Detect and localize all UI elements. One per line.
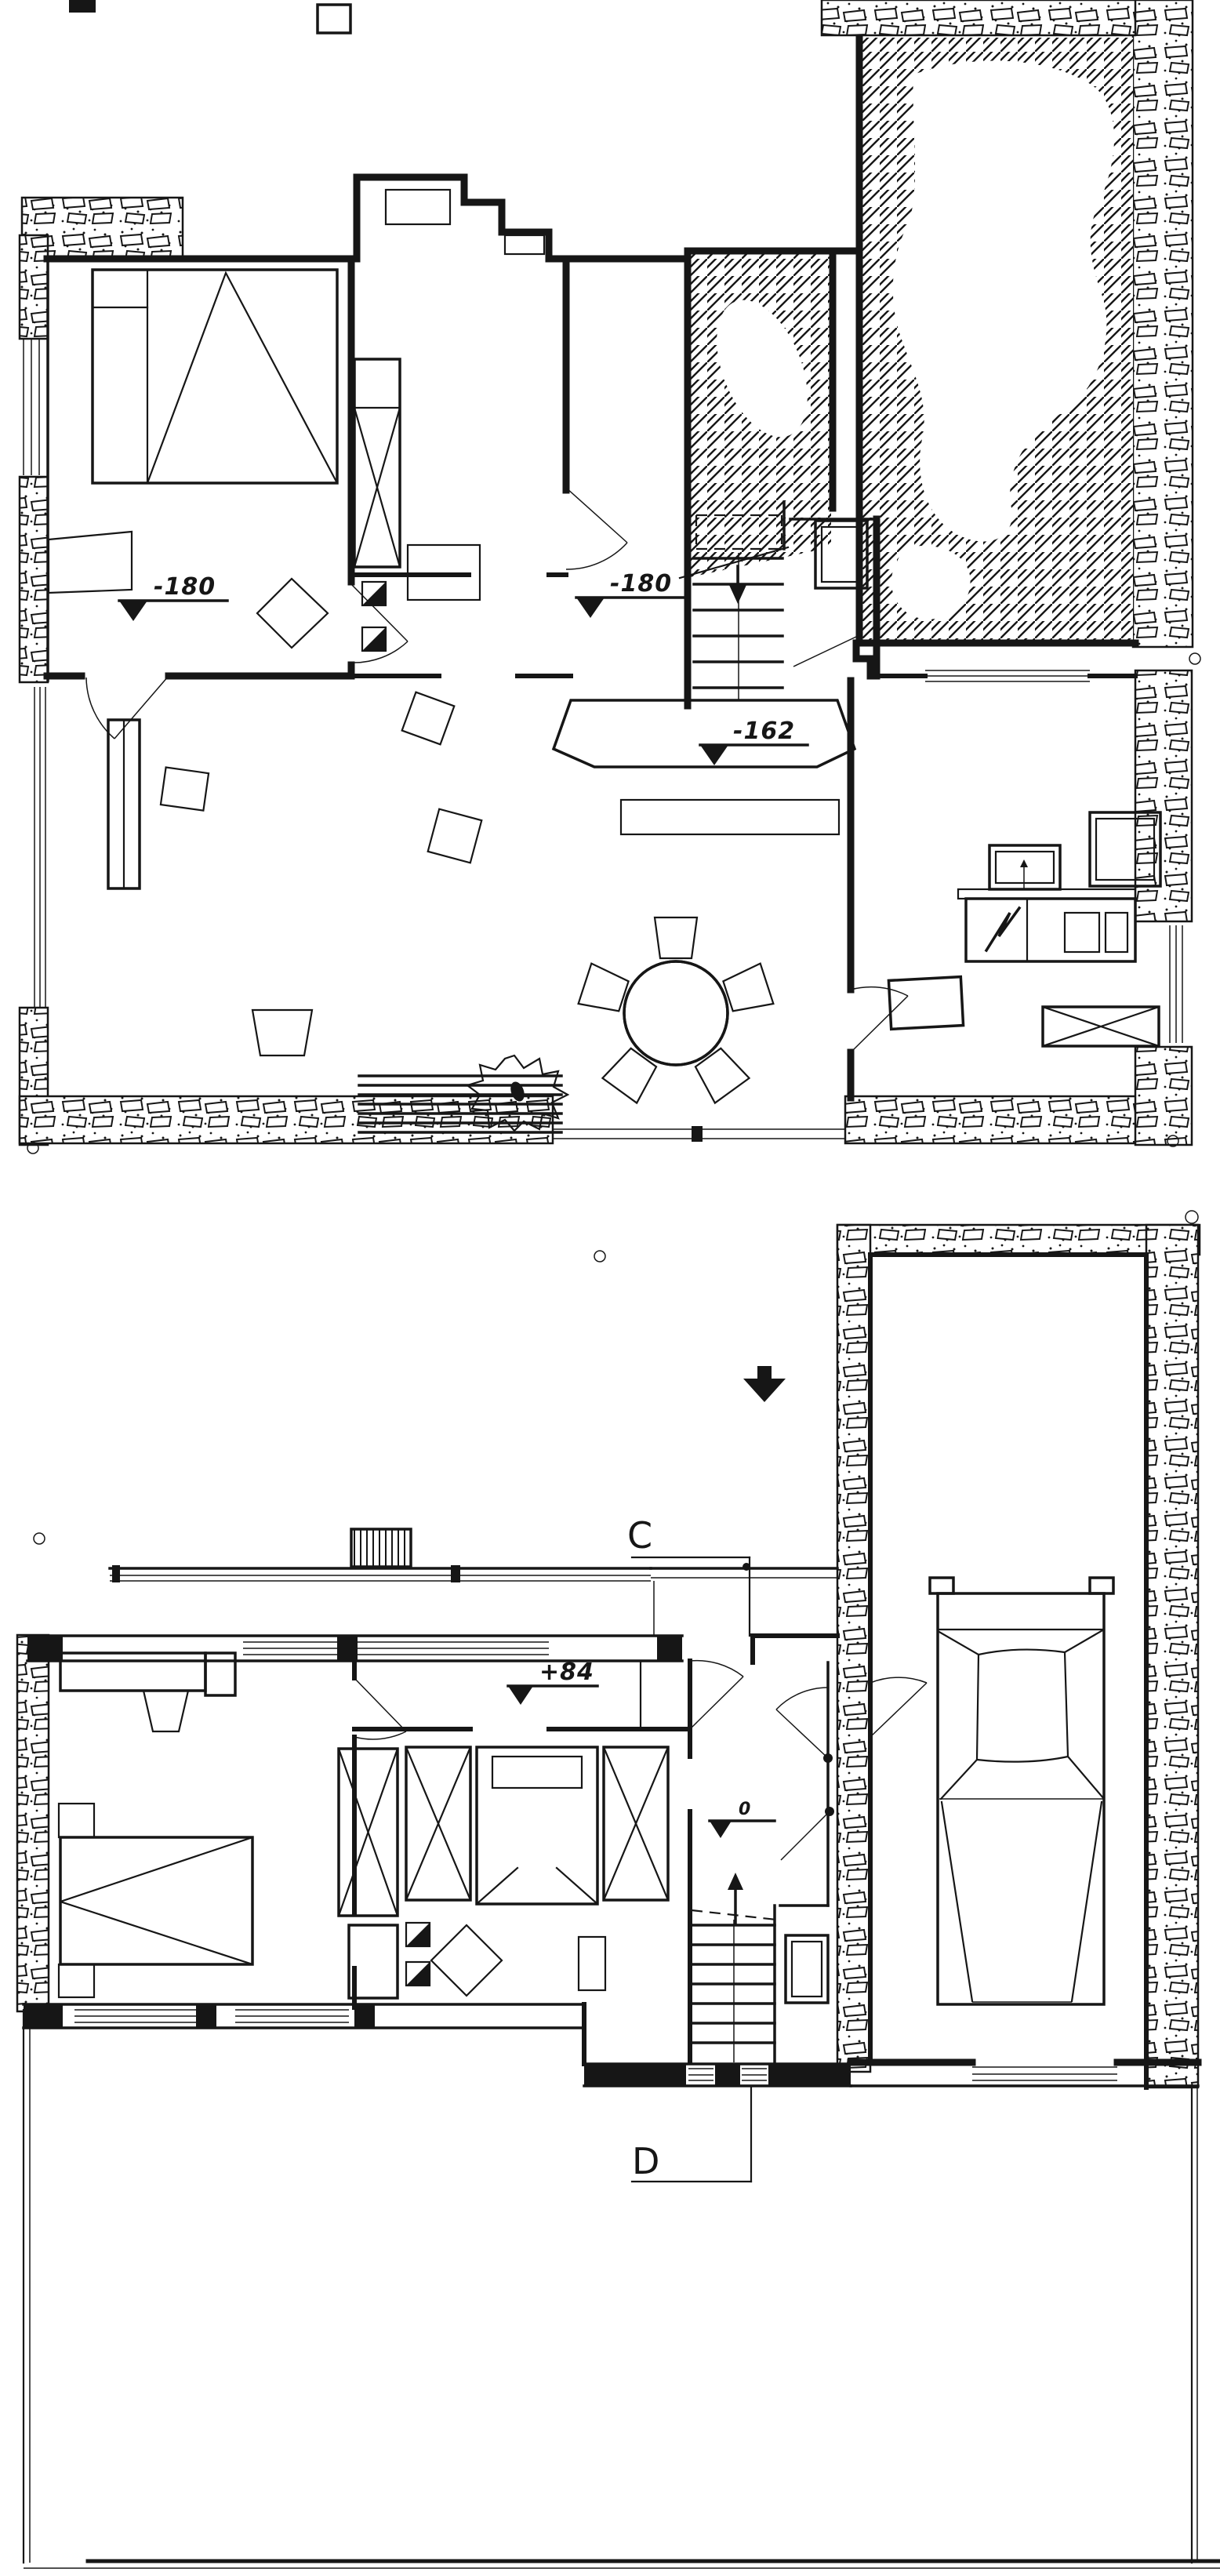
survey-circle <box>594 1251 605 1262</box>
bed <box>60 1837 252 1964</box>
car-mirror-left <box>930 1578 953 1593</box>
stair-arrow-head <box>729 585 746 604</box>
garden-steps <box>359 1076 561 1132</box>
wardrobe-x <box>406 1747 470 1900</box>
middle-bedroom-furniture <box>406 1747 668 1996</box>
floor-cushion <box>257 579 328 648</box>
level-label: -180 <box>610 570 672 598</box>
north-arrow <box>743 1366 786 1402</box>
living-room-furniture <box>108 692 845 1142</box>
panel-symbols <box>406 1923 430 1986</box>
level-label: -162 <box>733 718 795 745</box>
floor-plan-drawing: -180 -180 -162 <box>0 0 1220 2576</box>
kitchen-table <box>989 845 1060 889</box>
wardrobe-x <box>339 1749 398 1916</box>
side-table <box>49 532 132 593</box>
section-label-c: C <box>627 1514 652 1557</box>
floor-cushion <box>431 1925 502 1996</box>
wardrobe-x <box>604 1747 668 1900</box>
dining-table <box>579 917 774 1103</box>
hatched-stair-void <box>688 251 859 577</box>
site-boundary <box>24 2010 1220 2568</box>
terrace-blob-small <box>891 546 971 619</box>
stairs-up <box>692 1873 776 2062</box>
level-label: +84 <box>539 1659 594 1686</box>
facade-wall <box>27 1636 837 1662</box>
split-level-platform <box>554 700 855 834</box>
corner-post-circle <box>1189 653 1200 664</box>
bench <box>252 1010 312 1055</box>
sink-basin-2 <box>1106 913 1127 952</box>
level-marker-landing: 0 <box>710 1800 775 1838</box>
nightstand <box>59 1964 94 1997</box>
door-swings <box>86 488 908 1052</box>
side-table <box>579 1937 605 1990</box>
masonry-wall-west <box>17 1635 49 2011</box>
section-label-d: D <box>632 2140 659 2182</box>
level-marker-bedroom: -180 <box>119 573 227 621</box>
nightstand <box>59 1804 94 1837</box>
chimney <box>351 1529 411 1567</box>
roof-terrace-railing <box>110 1565 837 1636</box>
car-mirror-right <box>1090 1578 1113 1593</box>
level-marker-living: -162 <box>700 718 808 765</box>
electric-stove-symbol <box>986 908 1019 950</box>
level-label: 0 <box>739 1800 750 1819</box>
plan-sheet: -180 -180 -162 <box>0 0 1220 2576</box>
lower-plan: +84 0 C D <box>17 1211 1220 2568</box>
wardrobe-x <box>354 359 400 567</box>
edge-mark <box>69 0 96 13</box>
kitchen <box>888 812 1160 1046</box>
left-bedroom-furniture <box>59 1653 398 1998</box>
small-table <box>888 977 963 1030</box>
stair-arrow-head <box>728 1873 743 1890</box>
survey-circle <box>1186 1211 1198 1223</box>
veranda-doors <box>553 1126 845 1142</box>
garage-walls <box>851 1255 1198 2087</box>
upper-plan: -180 -180 -162 <box>20 0 1200 1154</box>
bed <box>477 1747 597 1904</box>
level-label: -180 <box>154 573 216 601</box>
sink-basin-1 <box>1065 913 1099 952</box>
car <box>930 1578 1113 2004</box>
chair <box>143 1691 188 1731</box>
survey-circle <box>34 1533 45 1544</box>
level-marker-hall: -180 <box>576 570 684 618</box>
car-cabin <box>977 1650 1068 1762</box>
counter-edge <box>958 889 1135 899</box>
wc-fixture <box>786 1935 828 2003</box>
level-marker-hall-upper: +84 <box>508 1659 597 1705</box>
desk <box>60 1653 235 1731</box>
small-roof-box <box>318 5 350 33</box>
chest-x <box>1043 1007 1159 1046</box>
hatched-terrace <box>856 38 1135 643</box>
bedroom-furniture <box>49 270 480 648</box>
